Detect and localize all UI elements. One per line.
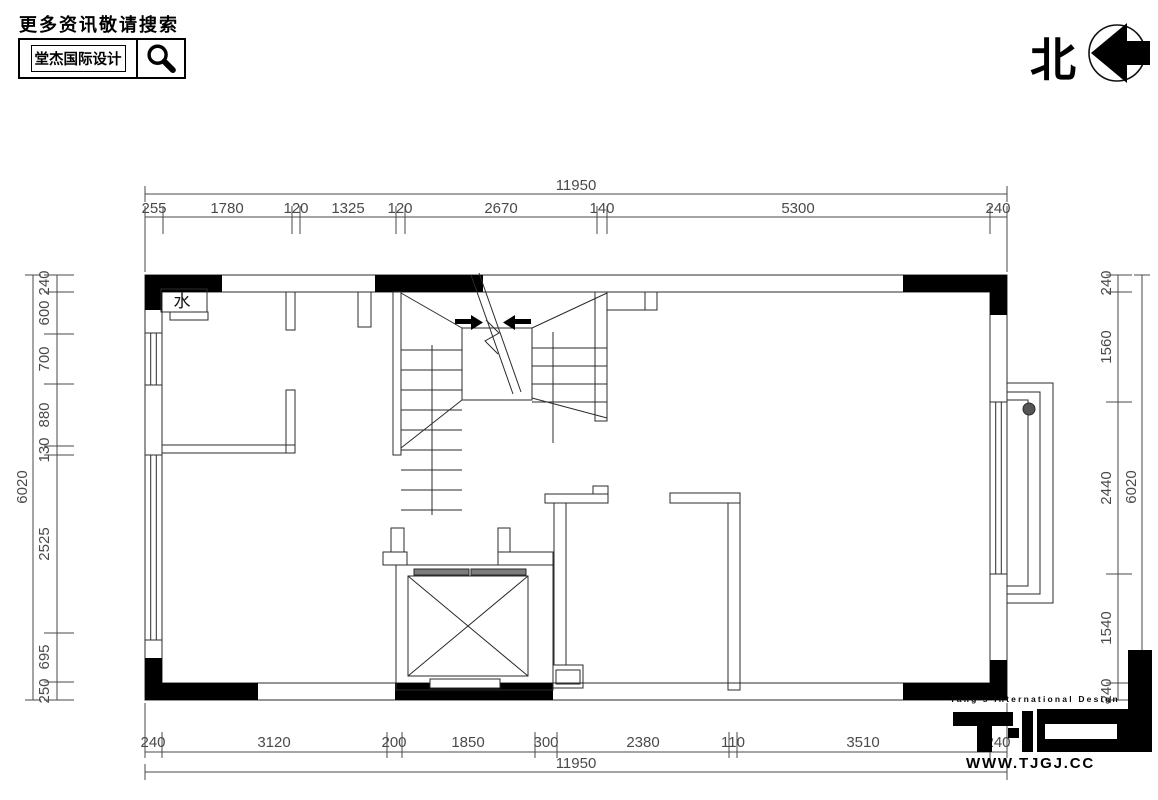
svg-text:2670: 2670 <box>484 200 517 217</box>
dim-left-overall: 6020 <box>14 470 31 503</box>
tjd-logo-t-stem <box>977 726 992 752</box>
svg-text:1850: 1850 <box>451 734 484 751</box>
svg-text:140: 140 <box>589 200 614 217</box>
svg-text:695: 695 <box>36 644 53 669</box>
svg-text:130: 130 <box>36 437 53 462</box>
svg-text:700: 700 <box>36 346 53 371</box>
dim-labels-right: 6020 240 1560 2440 1540 240 <box>1098 270 1140 703</box>
tjd-logo-t-bar <box>953 712 1013 726</box>
svg-text:2440: 2440 <box>1098 471 1115 504</box>
svg-text:120: 120 <box>283 200 308 217</box>
svg-text:110: 110 <box>721 734 745 751</box>
svg-text:1540: 1540 <box>1098 611 1115 644</box>
svg-text:1560: 1560 <box>1098 330 1115 363</box>
bay-window <box>1007 383 1053 603</box>
dim-chain-left <box>25 275 74 700</box>
svg-text:2525: 2525 <box>36 527 53 560</box>
svg-text:3510: 3510 <box>846 734 879 751</box>
tjd-logo-d-stem <box>1128 650 1152 752</box>
dim-chain-top <box>145 186 1007 272</box>
svg-text:240: 240 <box>140 734 165 751</box>
window-left-upper <box>145 333 162 385</box>
dim-bottom-overall: 11950 <box>556 755 597 772</box>
window-left-lower <box>145 455 162 640</box>
elevator-shaft <box>383 528 553 690</box>
tjd-logo-d-hole <box>1045 724 1117 739</box>
dim-labels-top: 11950 255 1780 120 1325 120 2670 140 530… <box>141 177 1010 217</box>
svg-text:240: 240 <box>1098 270 1115 295</box>
svg-text:240: 240 <box>36 270 53 295</box>
svg-text:5300: 5300 <box>781 200 814 217</box>
interior-walls-middle <box>545 486 740 690</box>
staircase <box>393 273 657 515</box>
water-label: 水 <box>174 292 191 311</box>
svg-text:600: 600 <box>36 300 53 325</box>
footer-website: WWW.TJGJ.CC <box>966 755 1095 772</box>
svg-text:250: 250 <box>36 678 53 703</box>
footer-tagline: Tang's International Design <box>950 694 1120 704</box>
water-meter-box: 水 <box>161 289 208 320</box>
floor-plan-drawing: 11950 255 1780 120 1325 120 2670 140 530… <box>0 0 1158 800</box>
tjd-logo-j-bar <box>1022 711 1033 752</box>
svg-text:300: 300 <box>533 734 558 751</box>
dim-right-overall: 6020 <box>1123 470 1140 503</box>
dim-top-overall: 11950 <box>556 177 597 194</box>
svg-text:1325: 1325 <box>331 200 364 217</box>
window-right <box>990 402 1007 574</box>
tjd-logo-dot <box>1008 728 1019 738</box>
svg-text:2380: 2380 <box>626 734 659 751</box>
svg-text:120: 120 <box>387 200 412 217</box>
svg-text:3120: 3120 <box>257 734 290 751</box>
outer-walls <box>145 275 1007 700</box>
dim-labels-bottom: 11950 240 3120 200 1850 300 2380 110 351… <box>140 734 1010 772</box>
svg-text:1780: 1780 <box>210 200 243 217</box>
interior-walls-topleft <box>162 292 371 453</box>
svg-text:240: 240 <box>985 200 1010 217</box>
svg-text:200: 200 <box>381 734 406 751</box>
svg-text:880: 880 <box>36 402 53 427</box>
wall-columns <box>145 275 1007 700</box>
svg-text:255: 255 <box>141 200 166 217</box>
